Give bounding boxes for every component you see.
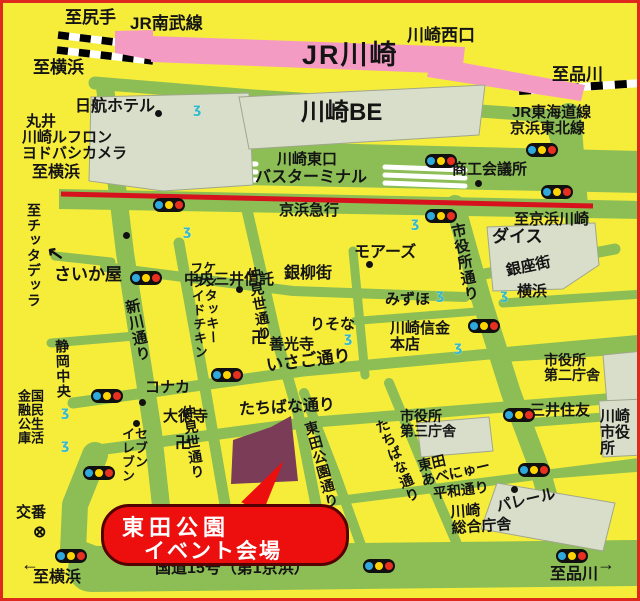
label-saikaya: さいか屋	[54, 266, 122, 284]
label-jr-nambu-line: JR南武線	[130, 15, 203, 33]
label-kawasaki-shinkin: 川崎信金 本店	[390, 321, 450, 353]
traffic-light-icon	[503, 408, 535, 422]
label-dice: ダイス	[492, 228, 543, 246]
label-to-shinagawa-top: 至品川	[552, 66, 603, 84]
label-koban: 交番	[16, 505, 46, 521]
label-mizuho: みずほ	[385, 292, 430, 308]
label-kawasaki-sogo: 川崎 総合庁舎	[450, 501, 512, 537]
label-to-cittadella: 至チッタデッラ	[27, 203, 41, 308]
label-marui: 丸井	[26, 114, 56, 130]
bus-bay-stripe	[385, 183, 465, 186]
label-yokohama-bank: 横浜	[517, 284, 547, 300]
label-jr-tokaido-line: JR東海道線	[512, 105, 591, 121]
label-to-keihin-kawasaki: 至京浜川崎	[514, 212, 589, 228]
traffic-light-icon	[425, 209, 457, 223]
venue-subtitle: イベント会場	[144, 535, 282, 565]
pedestrian-signal-icon: ʒ	[61, 406, 69, 419]
label-nikko-hotel: 日航ホテル	[75, 98, 155, 115]
traffic-light-icon	[91, 389, 123, 403]
pedestrian-signal-icon: ʒ	[454, 341, 462, 354]
label-kawasaki-be: 川崎BE	[301, 100, 382, 126]
pedestrian-signal-icon: ʒ	[183, 225, 191, 238]
traffic-light-icon	[153, 198, 185, 212]
building-dot	[475, 180, 482, 187]
label-jr-kawasaki-station: JR川崎	[302, 41, 399, 70]
label-shiyakusho-dai2: 市役所 第二庁舎	[544, 353, 600, 383]
label-kawasaki-east-exit: 川崎東口	[277, 152, 337, 168]
label-shoko-kaigisho: 商工会議所	[452, 162, 527, 178]
traffic-light-icon	[541, 185, 573, 199]
traffic-light-icon	[556, 549, 588, 563]
traffic-light-icon	[83, 466, 115, 480]
label-konaka: コナカ	[145, 380, 190, 396]
pedestrian-signal-icon: ʒ	[411, 217, 419, 230]
label-to-yokohama-top: 至横浜	[33, 59, 84, 77]
arrow-right-icon: →	[597, 554, 615, 575]
pedestrian-signal-icon: ʒ	[193, 103, 201, 116]
label-to-yokohama-bottom: 至横浜	[33, 569, 81, 586]
label-moars: モアーズ	[354, 244, 416, 261]
venue-callout: 東田公園 イベント会場	[101, 504, 349, 566]
label-kokumin-seikatsu: 国民生活 金融公庫	[17, 389, 43, 445]
road-east-stub-avenue	[539, 467, 640, 475]
traffic-light-icon	[363, 559, 395, 573]
label-seven-eleven: セブン イレブン	[121, 427, 147, 483]
label-to-shitte: 至尻手	[65, 9, 116, 27]
kawasaki-area-map: 至尻手 JR南武線 至横浜 川崎西口 JR川崎 至品川 JR東海道線 京浜東北線…	[0, 0, 640, 601]
traffic-light-icon	[526, 143, 558, 157]
traffic-light-icon	[55, 549, 87, 563]
traffic-light-icon	[468, 319, 500, 333]
building-dot	[236, 286, 243, 293]
bldg-shiyakusho-dai2	[603, 351, 640, 403]
label-ginryu-gai: 銀柳街	[284, 265, 332, 282]
building-dot	[155, 110, 162, 117]
label-shiyakusho-dai3: 市役所 第三庁舎	[400, 409, 456, 439]
temple-manji-icon: 卍	[175, 429, 191, 453]
label-kawasaki-city-hall: 川崎 市役所	[600, 409, 637, 458]
label-to-yokohama-left: 至横浜	[32, 164, 80, 181]
label-keihin-kyuko: 京浜急行	[279, 203, 339, 219]
traffic-light-icon	[211, 368, 243, 382]
building-dot	[366, 261, 373, 268]
building-dot	[139, 399, 146, 406]
koban-mark-icon: ⊗	[33, 522, 46, 542]
temple-manji-icon: 卍	[251, 324, 267, 348]
label-shizuoka-chuo: 静岡中央	[55, 339, 71, 399]
pedestrian-signal-icon: ʒ	[436, 289, 444, 302]
label-mitsui-sumitomo: 三井住友	[530, 403, 590, 419]
building-dot	[133, 420, 140, 427]
road-moars-vertical	[353, 251, 365, 375]
label-yodobashi-camera: ヨドバシカメラ	[22, 146, 127, 162]
traffic-light-icon	[425, 154, 457, 168]
pedestrian-signal-icon: ʒ	[500, 289, 508, 302]
building-dot	[511, 486, 518, 493]
pedestrian-signal-icon: ʒ	[344, 332, 352, 345]
label-kawasaki-west-exit: 川崎西口	[407, 27, 475, 45]
traffic-light-icon	[130, 271, 162, 285]
label-to-shinagawa-bottom: 至品川	[550, 566, 598, 583]
label-kawasaki-le-front: 川崎ルフロン	[22, 130, 112, 146]
label-bus-terminal: バスターミナル	[255, 169, 367, 186]
label-keihin-tohoku-line: 京浜東北線	[510, 121, 585, 137]
traffic-light-icon	[518, 463, 550, 477]
arrow-left-icon: ←	[21, 554, 39, 575]
label-kfc: ケンタッキー フライドチキン	[189, 260, 220, 359]
building-dot	[123, 232, 130, 239]
pedestrian-signal-icon: ʒ	[61, 439, 69, 452]
